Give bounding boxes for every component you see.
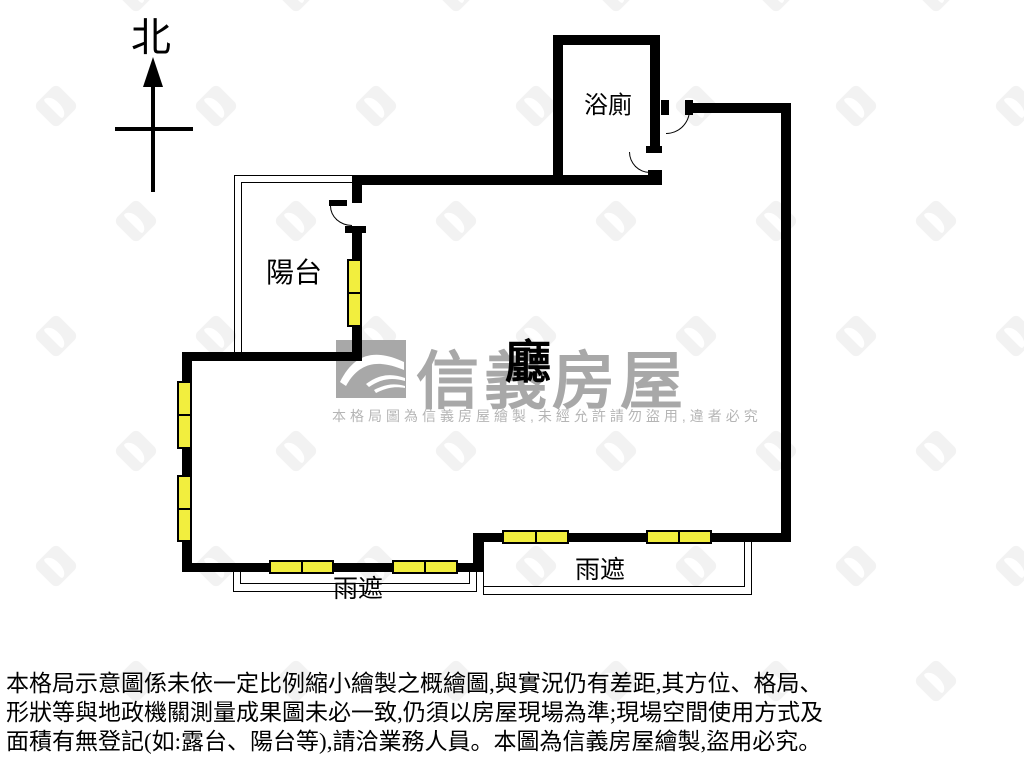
disclaimer-line-2: 形狀等與地政機關測量成果圖未必一致,仍須以房屋現場為準;現場空間使用方式及 [6, 698, 1020, 727]
wall-mid-top [352, 175, 662, 185]
wall-bath-top [553, 35, 660, 45]
window-mullion [349, 292, 360, 294]
window-bottom-left-1 [269, 560, 334, 574]
wall-top-right [692, 103, 791, 113]
window-bottom-left-2 [392, 560, 458, 574]
wall-bath-left [553, 35, 563, 175]
canopy-right-label: 雨遮 [575, 550, 625, 586]
entrance-door-swing-arc [666, 110, 690, 134]
wall-bath-right [650, 35, 660, 148]
window-mullion [301, 562, 303, 572]
north-label: 北 [131, 5, 171, 63]
disclaimer-line-1: 本格局示意圖係未依一定比例縮小繪製之概繪圖,與實況仍有差距,其方位、格局、 [6, 669, 1020, 698]
window-left-upper [177, 381, 192, 449]
window-left-lower [177, 475, 192, 542]
compass-crossbar [115, 127, 193, 131]
disclaimer-line-3: 面積有無登記(如:露台、陽台等),請洽業務人員。本圖為信義房屋繪製,盜用必究。 [6, 727, 1020, 756]
bathroom-door-jamb-bottom [648, 170, 662, 177]
window-bottom-right-1 [502, 530, 569, 544]
window-mullion [179, 508, 190, 510]
window-mullion [424, 562, 426, 572]
bathroom-label: 浴廁 [584, 85, 632, 120]
wall-right [781, 103, 791, 542]
window-mullion [535, 532, 537, 542]
bathroom-door-swing-arc [629, 152, 650, 173]
window-mullion [678, 532, 680, 542]
wall-top-left [182, 352, 362, 361]
floorplan-canvas: 信義房屋 本格局圖為信義房屋繪製,未經允許請勿盜用,違者必究 [0, 0, 1024, 768]
window-mullion [179, 414, 190, 416]
balcony-label: 陽台 [266, 251, 322, 291]
window-balcony [347, 259, 362, 327]
canopy-left-label: 雨遮 [333, 569, 383, 605]
disclaimer: 本格局示意圖係未依一定比例縮小繪製之概繪圖,與實況仍有差距,其方位、格局、 形狀… [6, 669, 1020, 756]
compass-needle [151, 80, 155, 192]
balcony-door-jamb [345, 226, 366, 233]
window-bottom-right-2 [646, 530, 712, 544]
living-room-label: 廳 [505, 326, 551, 392]
